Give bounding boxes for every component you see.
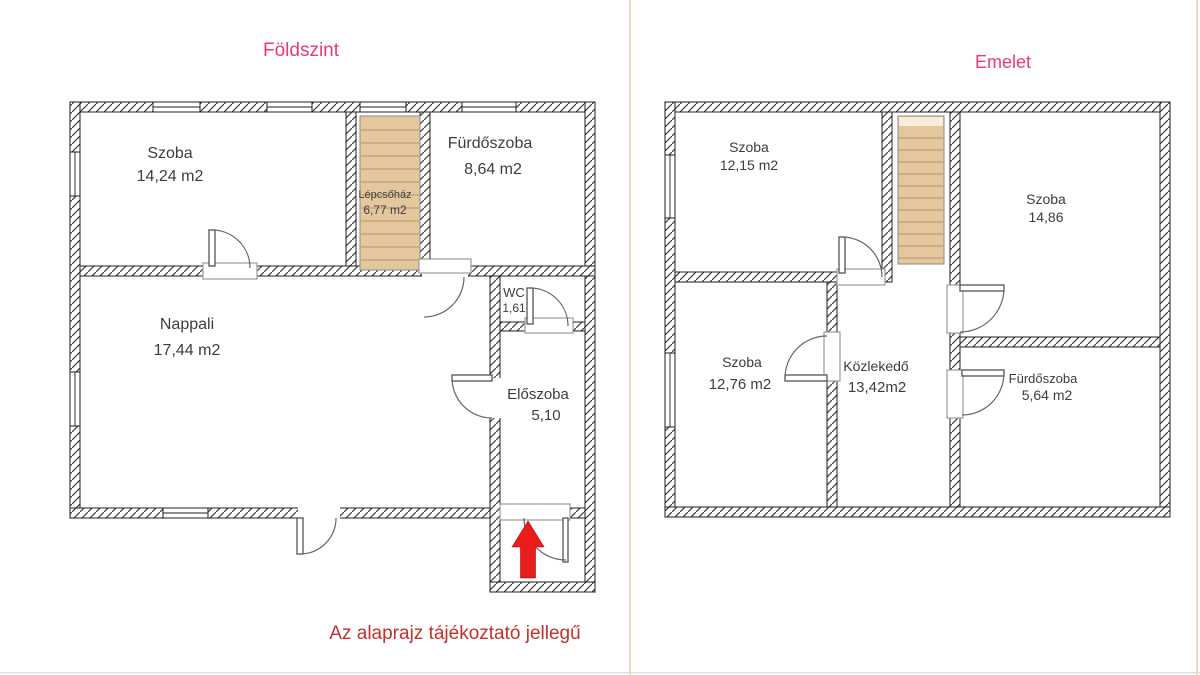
- bottom-edge-line: [0, 672, 1200, 674]
- room-label: Szoba: [729, 139, 769, 155]
- upper-stairwell-wall-left: [882, 112, 892, 282]
- room-area: 1,61: [502, 301, 526, 315]
- door-swing-arc: [962, 373, 1004, 415]
- room-area: 5,10: [531, 407, 560, 424]
- door-sill: [947, 370, 963, 418]
- ground-wall-right: [585, 102, 595, 592]
- room-label: Nappali: [160, 316, 214, 333]
- upper-wall-top: [665, 102, 1170, 112]
- room-area: 14,86: [1028, 209, 1063, 225]
- room-label: Szoba: [722, 354, 762, 370]
- door-swing-arc: [424, 277, 464, 317]
- door-sill: [947, 285, 963, 333]
- door-swing-arc: [212, 230, 250, 268]
- room-area: 5,64 m2: [1022, 387, 1073, 403]
- door-leaf: [297, 518, 303, 554]
- door-leaf: [452, 375, 492, 381]
- room-label: Fürdőszoba: [1009, 371, 1078, 386]
- staircase-landing: [899, 117, 943, 126]
- entrance-arrow-icon: [512, 521, 544, 578]
- ground-wall-bottom: [70, 508, 500, 518]
- ground-wall-partition-horizontal: [80, 266, 595, 276]
- upper-room-labels: Szoba 12,15 m2 Szoba 14,86 Szoba 12,76 m…: [709, 139, 1078, 403]
- ground-stairwell-wall-right: [420, 112, 430, 266]
- floorplan-page: Szoba 14,24 m2 Lépcsőház 6,77 m2 Fürdősz…: [0, 0, 1200, 675]
- room-label: Lépcsőház: [358, 189, 411, 201]
- room-area: 17,44 m2: [154, 342, 221, 359]
- ground-windows: [70, 102, 516, 518]
- door-leaf: [527, 288, 533, 324]
- room-label: Fürdőszoba: [448, 135, 533, 152]
- door-opening: [298, 507, 340, 519]
- panel-divider-line: [629, 0, 631, 675]
- room-area: 6,77 m2: [363, 203, 407, 217]
- disclaimer-text: Az alaprajz tájékoztató jellegű: [329, 623, 580, 644]
- door-swing-arc: [300, 518, 336, 554]
- upper-wall-right: [1160, 102, 1170, 517]
- ground-floor-plan: Szoba 14,24 m2 Lépcsőház 6,77 m2 Fürdősz…: [70, 102, 595, 592]
- upper-staircase: [898, 116, 944, 264]
- upper-bath-wall-top: [960, 337, 1160, 347]
- room-area: 8,64 m2: [464, 161, 522, 178]
- door-sill: [419, 259, 471, 273]
- ground-hall-wall-left: [490, 276, 500, 592]
- door-leaf: [209, 230, 215, 266]
- door-leaf: [785, 375, 827, 381]
- door-sill: [824, 332, 840, 381]
- room-label: WC: [503, 285, 525, 300]
- room-area: 13,42m2: [848, 379, 906, 396]
- door-swing-arc: [785, 336, 827, 378]
- room-label: Szoba: [1026, 191, 1066, 207]
- room-label: Közlekedő: [843, 358, 909, 374]
- room-area: 12,15 m2: [720, 157, 779, 173]
- door-leaf: [962, 370, 1004, 376]
- door-leaf: [563, 518, 568, 562]
- door-swing-arc: [452, 378, 492, 418]
- door-opening: [489, 378, 501, 418]
- ground-floor-title: Földszint: [263, 40, 340, 61]
- door-leaf: [960, 285, 1004, 291]
- upper-wall-bottom: [665, 507, 1170, 517]
- room-label: Előszoba: [507, 386, 569, 403]
- upper-floor-title: Emelet: [975, 52, 1031, 72]
- door-swing-arc: [960, 288, 1004, 332]
- right-edge-line: [1196, 0, 1198, 675]
- upper-corridor-wall-left: [827, 282, 837, 507]
- room-area: 14,24 m2: [137, 168, 204, 185]
- floorplan-canvas: Szoba 14,24 m2 Lépcsőház 6,77 m2 Fürdősz…: [0, 0, 1200, 675]
- upper-floor-plan: Szoba 12,15 m2 Szoba 14,86 Szoba 12,76 m…: [665, 102, 1170, 517]
- entrance-door-sill: [500, 504, 570, 520]
- door-leaf: [839, 237, 845, 273]
- room-area: 12,76 m2: [709, 376, 772, 393]
- ground-stairwell-wall-left: [346, 112, 356, 266]
- room-label: Szoba: [147, 145, 192, 162]
- ground-vestibule-wall-bottom: [490, 582, 595, 592]
